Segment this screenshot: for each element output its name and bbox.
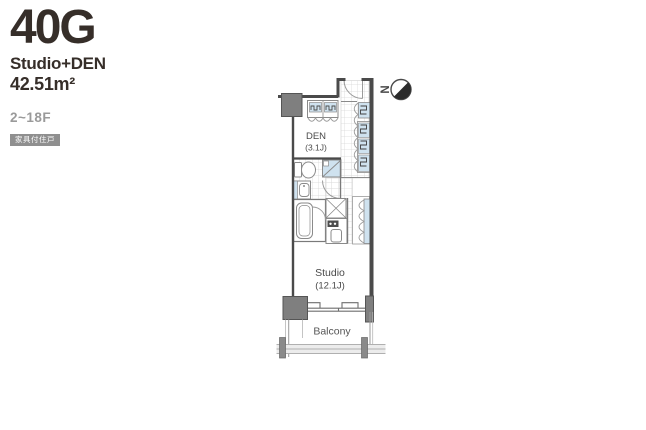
stove-icon: [328, 221, 339, 228]
toilet-icon: [295, 162, 316, 178]
pillar: [282, 94, 303, 117]
compass-n-label: N: [380, 85, 392, 93]
studio-size-label: (12.1J): [315, 281, 345, 292]
bathroom: [294, 200, 326, 242]
washbasin-icon: [294, 181, 311, 199]
floor-plan: N DEN (3.1J) Studio (12.1J) Balcony: [0, 0, 646, 430]
folding-door-icon: [308, 118, 338, 121]
window-wall: [308, 303, 367, 312]
den-closet-icon: [308, 101, 339, 122]
wall-notch: [342, 303, 358, 309]
wall-notch: [308, 303, 321, 309]
north-compass: N: [380, 80, 411, 100]
washing-machine-icon: [323, 160, 342, 177]
kitchen: [326, 198, 348, 244]
kitchen-sink-icon: [331, 230, 342, 243]
studio-label: Studio: [315, 267, 345, 279]
balcony-railing-icon: [277, 338, 386, 359]
balcony-label: Balcony: [313, 326, 351, 338]
pillar: [283, 297, 308, 320]
den-label: DEN: [306, 131, 326, 142]
floorplan-page: 40G Studio+DEN 42.51m² 2~18F 家具付住戸: [0, 0, 646, 430]
studio-closet-icon: [353, 197, 371, 245]
refrigerator-icon: [326, 199, 346, 219]
den-size-label: (3.1J): [305, 143, 327, 153]
